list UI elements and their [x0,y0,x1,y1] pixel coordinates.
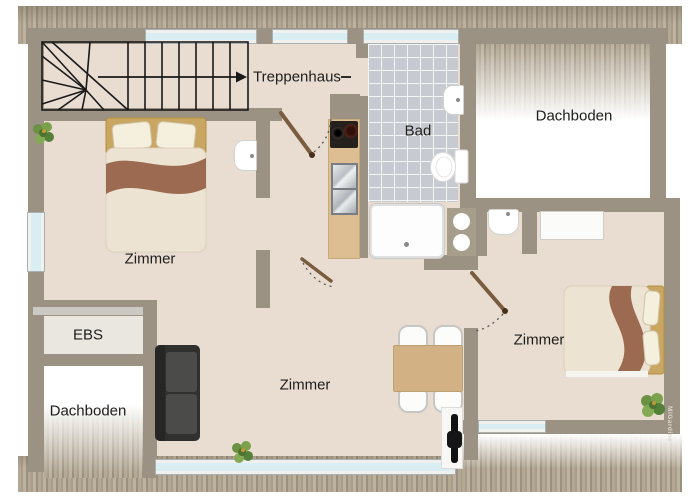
texture-fade [462,434,682,492]
wall [475,208,487,256]
roof-texture-bottom-right [462,434,682,492]
label-bedroom-right: Zimmer [514,332,565,349]
utility-circle [453,234,470,251]
faucet [250,154,254,158]
window [363,29,459,44]
dining-table [393,345,463,392]
wall [650,28,666,212]
window [27,212,45,272]
washbasin [443,85,464,115]
watermark: MiGardine [666,406,673,468]
bathtub-drain [404,242,409,247]
wall [28,108,282,121]
wall [460,44,476,212]
wall [464,328,478,460]
wall [256,250,270,308]
stove-burner [332,127,344,139]
chair [398,390,428,413]
floor-plan: Treppenhaus Bad Dachboden Zimmer EBS Dac… [0,0,700,500]
bathtub [370,204,444,258]
sink-basin [333,190,356,213]
washbasin [488,209,519,235]
room-bedroom-right [476,212,664,420]
label-staircase: Treppenhaus [253,69,341,86]
utility-circle [453,213,470,230]
stove-burner [344,124,358,138]
sofa-backrest [155,345,165,441]
closet-front-edge [33,307,143,315]
label-bathroom: Bad [405,123,432,140]
wall [664,212,680,434]
faucet [506,212,510,216]
label-living-room: Zimmer [280,377,331,394]
tv [447,431,462,448]
window [155,459,456,475]
wall [522,208,537,254]
sofa-cushion [166,394,197,434]
wall [256,120,270,198]
wall [28,354,156,366]
wardrobe [540,211,604,240]
faucet [456,98,460,102]
label-attic-top: Dachboden [536,108,613,125]
window [145,29,257,44]
label-attic-bottom: Dachboden [50,403,127,420]
sink-basin [333,165,356,188]
label-closet-ebs: EBS [73,327,103,344]
window [478,420,546,433]
label-bedroom-left: Zimmer [125,251,176,268]
wall [356,44,368,58]
sofa-cushion [166,352,197,392]
window [272,29,348,44]
